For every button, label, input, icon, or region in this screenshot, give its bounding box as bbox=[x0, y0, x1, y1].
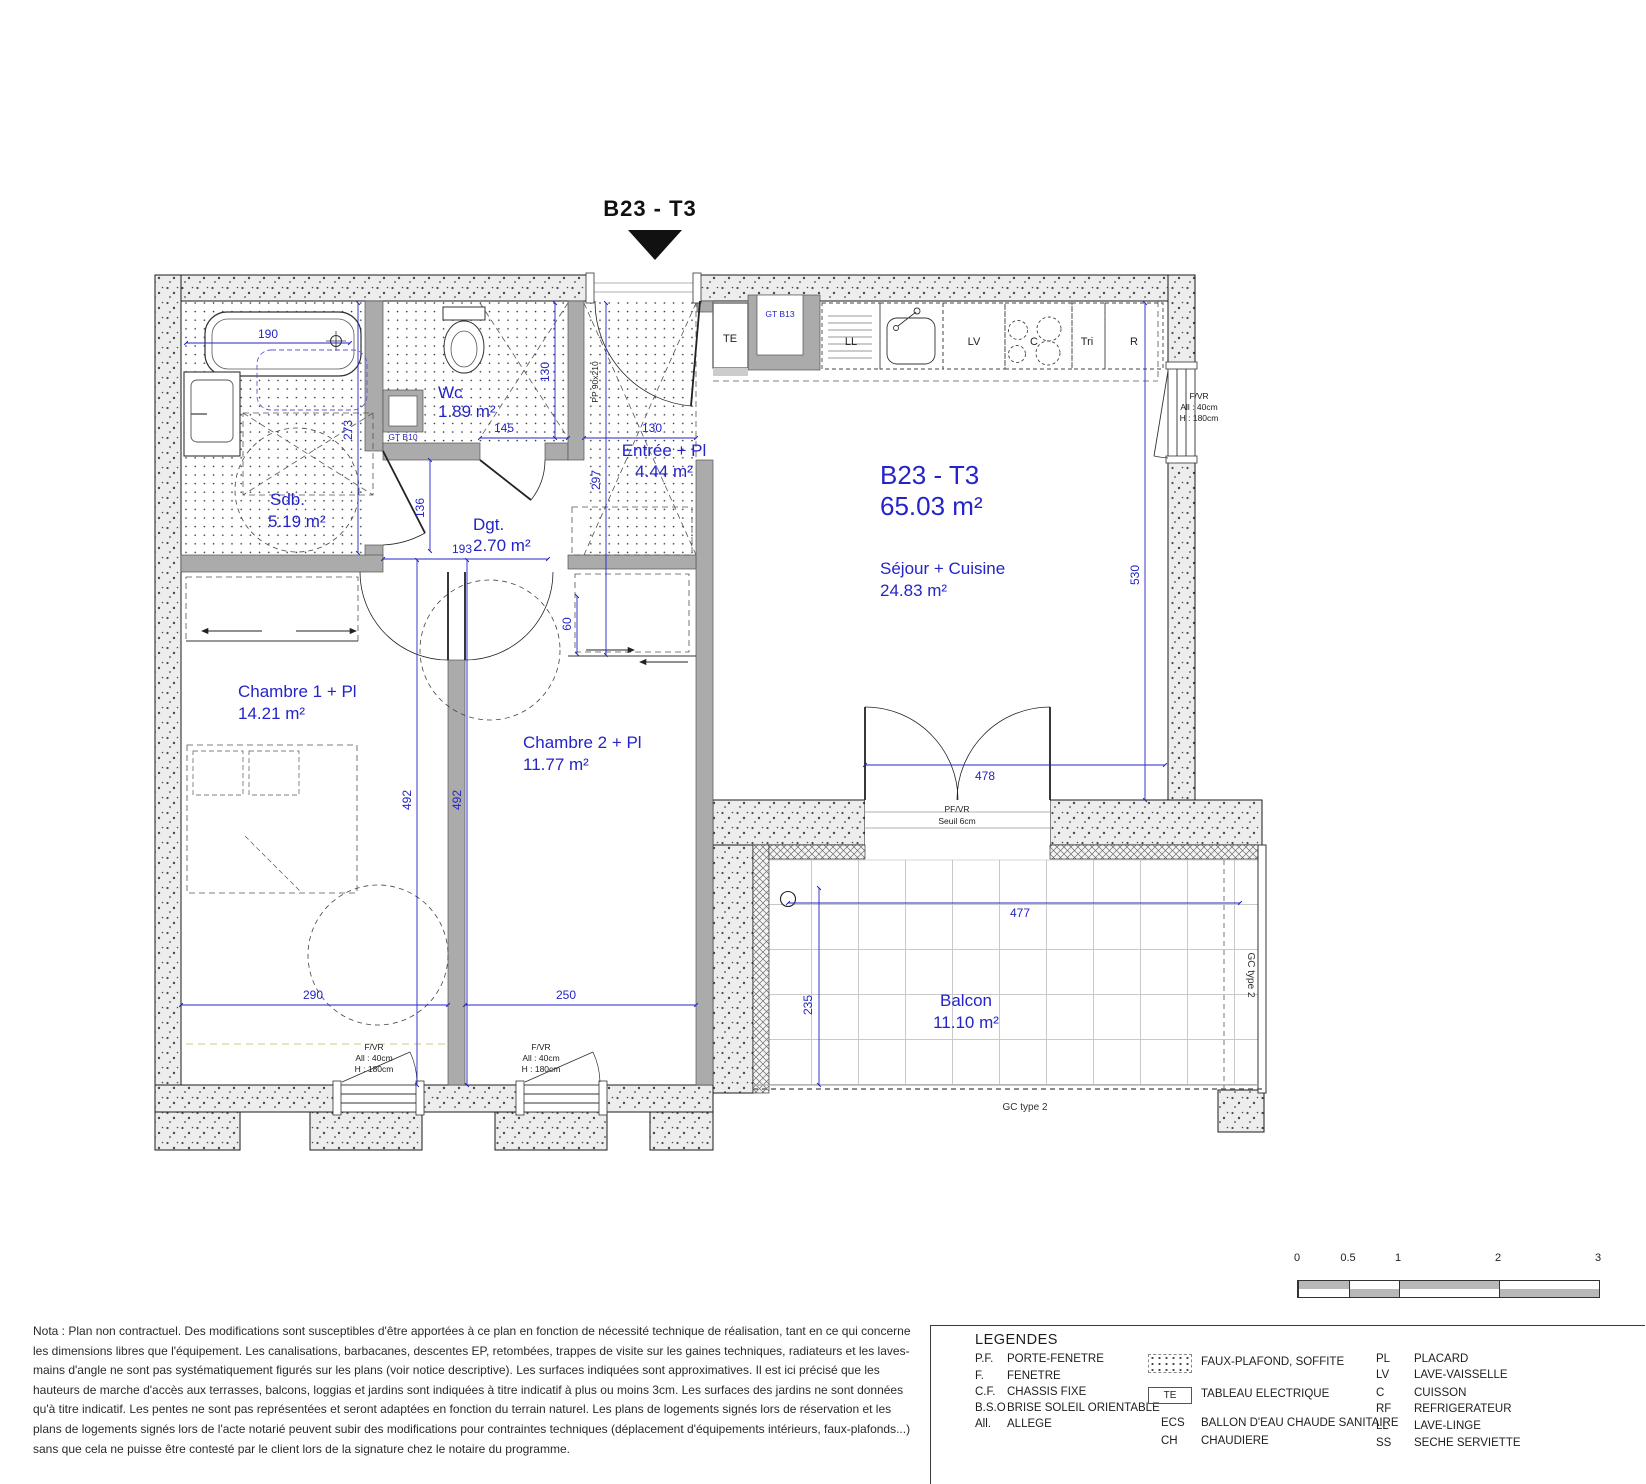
label-ll: LL bbox=[845, 336, 857, 348]
dim-balcon-width: 477 bbox=[1010, 906, 1030, 920]
legend-row: SS bbox=[1376, 1437, 1391, 1449]
label-lv: LV bbox=[968, 336, 981, 348]
room-label-dgt: Dgt. bbox=[473, 515, 504, 534]
nota-disclaimer: Nota : Plan non contractuel. Des modific… bbox=[33, 1322, 917, 1459]
dim-chambre1-width: 290 bbox=[303, 988, 323, 1002]
scalebar bbox=[1297, 1280, 1600, 1298]
legend-text: REFRIGERATEUR bbox=[1414, 1403, 1512, 1415]
dim-closet-depth: 60 bbox=[560, 617, 574, 631]
scale-3: 3 bbox=[1595, 1252, 1601, 1264]
room-area-sdb: 5.19 m² bbox=[268, 512, 326, 531]
label-tri: Tri bbox=[1081, 336, 1093, 348]
legend-label: SECHE SERVIETTE bbox=[1414, 1437, 1521, 1449]
legend-row: LV bbox=[1376, 1369, 1389, 1381]
label-r: R bbox=[1130, 336, 1138, 348]
furniture bbox=[186, 507, 696, 1044]
balcony-railing bbox=[1258, 845, 1266, 1093]
kitchen-sink bbox=[887, 318, 935, 364]
window-note-2-type: F/VR bbox=[531, 1042, 550, 1052]
legend-abbr: All. bbox=[975, 1418, 991, 1430]
label-c: C bbox=[1030, 336, 1038, 348]
dim-entree-height: 297 bbox=[589, 470, 603, 490]
legend-label: BALLON D'EAU CHAUDE SANITAIRE bbox=[1201, 1417, 1399, 1429]
window-note-right-height: H : 180cm bbox=[1180, 413, 1219, 423]
legend-text: ALLEGE bbox=[1007, 1418, 1052, 1430]
te-swatch-icon: TE bbox=[1148, 1387, 1192, 1404]
scale-1: 1 bbox=[1395, 1252, 1401, 1264]
balcony-drain bbox=[781, 892, 796, 907]
legend-label: REFRIGERATEUR bbox=[1414, 1403, 1512, 1415]
window-note-2-allege: All : 40cm bbox=[522, 1053, 559, 1063]
entrance-arrow-icon bbox=[628, 230, 682, 260]
dim-chambre2-height: 492 bbox=[450, 790, 464, 810]
legend-row: PL bbox=[1376, 1353, 1390, 1365]
room-area-dgt: 2.70 m² bbox=[473, 536, 531, 555]
legend-label: CHASSIS FIXE bbox=[1007, 1386, 1086, 1398]
legend-text: FENETRE bbox=[1007, 1370, 1061, 1382]
room-label-entree: Entrée + Pl bbox=[622, 441, 707, 460]
title-block: B23 - T3 bbox=[603, 196, 697, 260]
legend-text: BRISE SOLEIL ORIENTABLE bbox=[1007, 1402, 1160, 1414]
dim-sdb-height: 273 bbox=[341, 420, 355, 440]
legend-row: ECS bbox=[1161, 1417, 1185, 1429]
legend-abbr: B.S.O bbox=[975, 1402, 1006, 1414]
legend-row: C bbox=[1376, 1387, 1384, 1399]
legend: LEGENDES P.F. PORTE-FENETRE F. FENETRE C… bbox=[930, 1325, 1645, 1484]
legend-label: ALLEGE bbox=[1007, 1418, 1052, 1430]
legend-abbr: F. bbox=[975, 1370, 984, 1382]
legend-row: LL bbox=[1376, 1420, 1389, 1432]
dim-dgt-width: 193 bbox=[452, 542, 472, 556]
bed bbox=[187, 745, 357, 893]
gc-label-right: GC type 2 bbox=[1245, 952, 1256, 997]
legend-abbr: P.F. bbox=[975, 1353, 993, 1365]
legend-row: P.F. bbox=[975, 1353, 993, 1365]
room-area-sejour: 24.83 m² bbox=[880, 581, 947, 600]
room-label-sdb: Sdb. bbox=[270, 490, 305, 509]
legend-abbr: C.F. bbox=[975, 1386, 995, 1398]
legend-text: PLACARD bbox=[1414, 1353, 1468, 1365]
turning-circle-chambre2 bbox=[420, 580, 560, 720]
legend-text: TABLEAU ELECTRIQUE bbox=[1201, 1388, 1329, 1400]
legend-title: LEGENDES bbox=[975, 1332, 1058, 1348]
unit-code-label: B23 - T3 bbox=[880, 460, 979, 490]
room-label-sejour: Séjour + Cuisine bbox=[880, 559, 1005, 578]
legend-label: FENETRE bbox=[1007, 1370, 1061, 1382]
faux-plafond-swatch-icon bbox=[1148, 1354, 1192, 1373]
legend-abbr: CH bbox=[1161, 1435, 1178, 1447]
room-label-chambre1: Chambre 1 + Pl bbox=[238, 682, 357, 701]
legend-abbr: PL bbox=[1376, 1353, 1390, 1365]
dim-sejour-height: 530 bbox=[1128, 565, 1142, 585]
legend-text: BALLON D'EAU CHAUDE SANITAIRE bbox=[1201, 1417, 1399, 1429]
floor-plan-page: B23 - T3 bbox=[0, 0, 1646, 1484]
closet-chambre2 bbox=[575, 574, 689, 652]
legend-row: All. bbox=[975, 1418, 991, 1430]
page-title: B23 - T3 bbox=[603, 196, 697, 221]
legend-abbr: RF bbox=[1376, 1403, 1391, 1415]
legend-abbr: SS bbox=[1376, 1437, 1391, 1449]
legend-abbr: LV bbox=[1376, 1369, 1389, 1381]
legend-row: RF bbox=[1376, 1403, 1391, 1415]
bay-note-seuil: Seuil 6cm bbox=[938, 816, 975, 826]
legend-label: TABLEAU ELECTRIQUE bbox=[1201, 1388, 1329, 1400]
sdb-door-leaf bbox=[383, 451, 425, 533]
bathtub bbox=[205, 312, 361, 376]
room-area-chambre1: 14.21 m² bbox=[238, 704, 305, 723]
legend-label: FAUX-PLAFOND, SOFFITE bbox=[1201, 1356, 1344, 1368]
turning-circle-chambre1 bbox=[308, 885, 448, 1025]
room-area-wc: 1.89 m² bbox=[438, 402, 496, 421]
window-note-right-allege: All : 40cm bbox=[1180, 402, 1217, 412]
room-label-wc: Wc bbox=[438, 383, 463, 402]
unit-area-label: 65.03 m² bbox=[880, 491, 983, 521]
label-gt-b13: GT B13 bbox=[765, 309, 794, 319]
entry-door-tag: PP 90x210 bbox=[590, 361, 600, 403]
legend-abbr: LL bbox=[1376, 1420, 1389, 1432]
room-label-balcon: Balcon bbox=[940, 991, 992, 1010]
dim-wc-width: 145 bbox=[494, 421, 514, 435]
label-te: TE bbox=[723, 333, 737, 345]
legend-text: CHAUDIERE bbox=[1201, 1435, 1269, 1447]
dim-entree-width: 130 bbox=[642, 421, 662, 435]
bay-note-type: PF/VR bbox=[944, 804, 969, 814]
legend-text: SECHE SERVIETTE bbox=[1414, 1437, 1521, 1449]
window-note-right-type: F/VR bbox=[1189, 391, 1208, 401]
dim-balcon-depth: 235 bbox=[801, 995, 815, 1015]
legend-label: PORTE-FENETRE bbox=[1007, 1353, 1104, 1365]
legend-row: B.S.O bbox=[975, 1402, 1006, 1414]
dim-dgt-height: 136 bbox=[413, 498, 427, 518]
window-note-1-type: F/VR bbox=[364, 1042, 383, 1052]
legend-abbr: ECS bbox=[1161, 1417, 1185, 1429]
legend-label: LAVE-VAISSELLE bbox=[1414, 1369, 1508, 1381]
scale-2: 2 bbox=[1495, 1252, 1501, 1264]
dim-bay-width: 478 bbox=[975, 769, 995, 783]
legend-text: LAVE-VAISSELLE bbox=[1414, 1369, 1508, 1381]
cooktop bbox=[1005, 303, 1072, 369]
legend-label: BRISE SOLEIL ORIENTABLE bbox=[1007, 1402, 1160, 1414]
room-label-chambre2: Chambre 2 + Pl bbox=[523, 733, 642, 752]
wc-door-leaf bbox=[480, 460, 531, 500]
dim-chambre1-height: 492 bbox=[400, 790, 414, 810]
toilet bbox=[443, 307, 485, 320]
legend-label: CUISSON bbox=[1414, 1387, 1466, 1399]
balcony-floor bbox=[765, 860, 1258, 1085]
window-note-2-height: H : 180cm bbox=[522, 1064, 561, 1074]
legend-row: CH bbox=[1161, 1435, 1178, 1447]
room-area-entree: 4.44 m² bbox=[635, 462, 693, 481]
room-area-chambre2: 11.77 m² bbox=[523, 755, 589, 774]
window-note-1-allege: All : 40cm bbox=[355, 1053, 392, 1063]
legend-text: CHASSIS FIXE bbox=[1007, 1386, 1086, 1398]
legend-text: CUISSON bbox=[1414, 1387, 1466, 1399]
legend-text: PORTE-FENETRE bbox=[1007, 1353, 1104, 1365]
room-area-balcon: 11.10 m² bbox=[933, 1013, 999, 1032]
legend-text: LAVE-LINGE bbox=[1414, 1420, 1481, 1432]
dim-tub-width: 190 bbox=[258, 327, 278, 341]
scale-05: 0.5 bbox=[1340, 1252, 1355, 1264]
legend-row: C.F. bbox=[975, 1386, 995, 1398]
dim-wc-height: 130 bbox=[538, 362, 552, 382]
legend-row: F. bbox=[975, 1370, 984, 1382]
dim-chambre2-width: 250 bbox=[556, 988, 576, 1002]
legend-label: PLACARD bbox=[1414, 1353, 1468, 1365]
label-gt-b10: GT B10 bbox=[388, 432, 417, 442]
window-note-1-height: H : 180cm bbox=[355, 1064, 394, 1074]
legend-label: CHAUDIERE bbox=[1201, 1435, 1269, 1447]
gc-label-bottom: GC type 2 bbox=[1002, 1102, 1047, 1113]
scale-0: 0 bbox=[1294, 1252, 1300, 1264]
legend-label: LAVE-LINGE bbox=[1414, 1420, 1481, 1432]
legend-text: FAUX-PLAFOND, SOFFITE bbox=[1201, 1356, 1344, 1368]
legend-abbr: C bbox=[1376, 1387, 1384, 1399]
